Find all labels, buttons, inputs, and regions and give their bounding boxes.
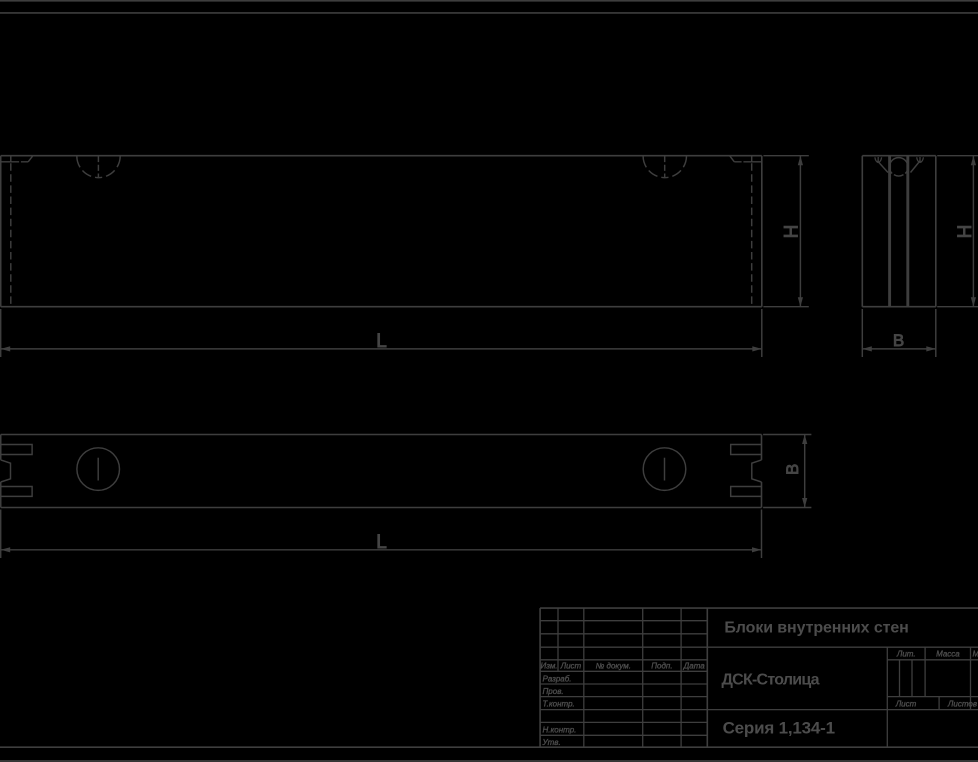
svg-text:Дата: Дата (683, 662, 706, 671)
svg-text:Масса: Масса (936, 650, 960, 659)
svg-text:Разраб.: Разраб. (543, 674, 572, 683)
svg-text:L: L (376, 331, 387, 352)
svg-text:Блоки внутренних стен: Блоки внутренних стен (724, 619, 908, 636)
svg-text:L: L (376, 532, 387, 553)
svg-text:Лист: Лист (560, 662, 582, 671)
svg-text:Лист: Лист (895, 700, 917, 709)
svg-text:Листов: Листов (947, 700, 977, 709)
svg-text:B: B (893, 331, 904, 350)
svg-text:Изм.: Изм. (540, 662, 557, 671)
svg-text:H: H (955, 225, 976, 239)
svg-text:Подп.: Подп. (651, 662, 672, 671)
svg-text:Масштаб: Масштаб (973, 650, 978, 659)
svg-text:Серия 1,134-1: Серия 1,134-1 (723, 719, 835, 738)
svg-text:H: H (782, 225, 803, 239)
svg-text:Пров.: Пров. (543, 687, 564, 696)
svg-text:Н.контр.: Н.контр. (543, 725, 577, 734)
svg-text:Утв.: Утв. (542, 738, 561, 747)
svg-text:B: B (783, 464, 802, 475)
svg-text:Т.контр.: Т.контр. (543, 700, 575, 709)
svg-text:Лит.: Лит. (896, 650, 916, 659)
svg-text:№ докум.: № докум. (596, 662, 631, 671)
svg-text:ДСК-Столица: ДСК-Столица (722, 672, 820, 689)
